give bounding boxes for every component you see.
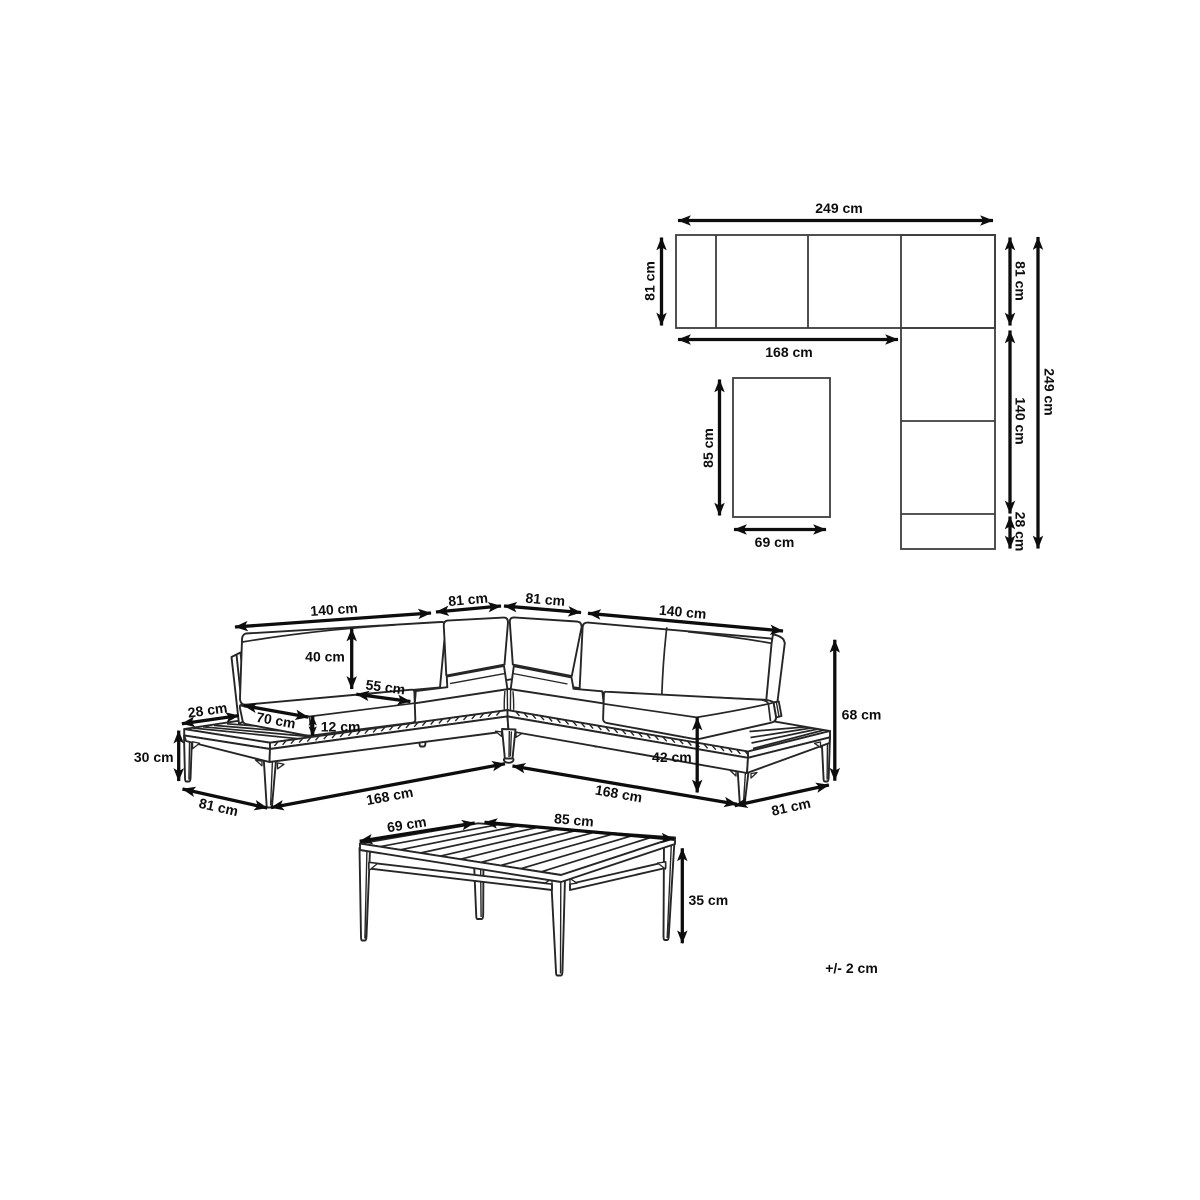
svg-text:249 cm: 249 cm xyxy=(1042,368,1058,415)
svg-text:81 cm: 81 cm xyxy=(642,261,658,301)
svg-text:249 cm: 249 cm xyxy=(815,200,862,216)
svg-text:35 cm: 35 cm xyxy=(688,892,728,908)
svg-text:30 cm: 30 cm xyxy=(134,749,174,765)
svg-text:81 cm: 81 cm xyxy=(1013,261,1029,301)
svg-text:168 cm: 168 cm xyxy=(765,344,812,360)
svg-text:69 cm: 69 cm xyxy=(755,534,795,550)
svg-text:140 cm: 140 cm xyxy=(1013,397,1029,444)
svg-text:81 cm: 81 cm xyxy=(525,590,566,609)
svg-text:40 cm: 40 cm xyxy=(305,649,345,665)
svg-text:140 cm: 140 cm xyxy=(310,600,359,619)
svg-text:68 cm: 68 cm xyxy=(842,707,882,723)
svg-text:85 cm: 85 cm xyxy=(700,428,716,468)
svg-text:12 cm: 12 cm xyxy=(321,719,361,735)
svg-text:28 cm: 28 cm xyxy=(1013,512,1029,552)
svg-text:+/- 2 cm: +/- 2 cm xyxy=(825,960,878,976)
svg-text:42 cm: 42 cm xyxy=(652,749,692,765)
